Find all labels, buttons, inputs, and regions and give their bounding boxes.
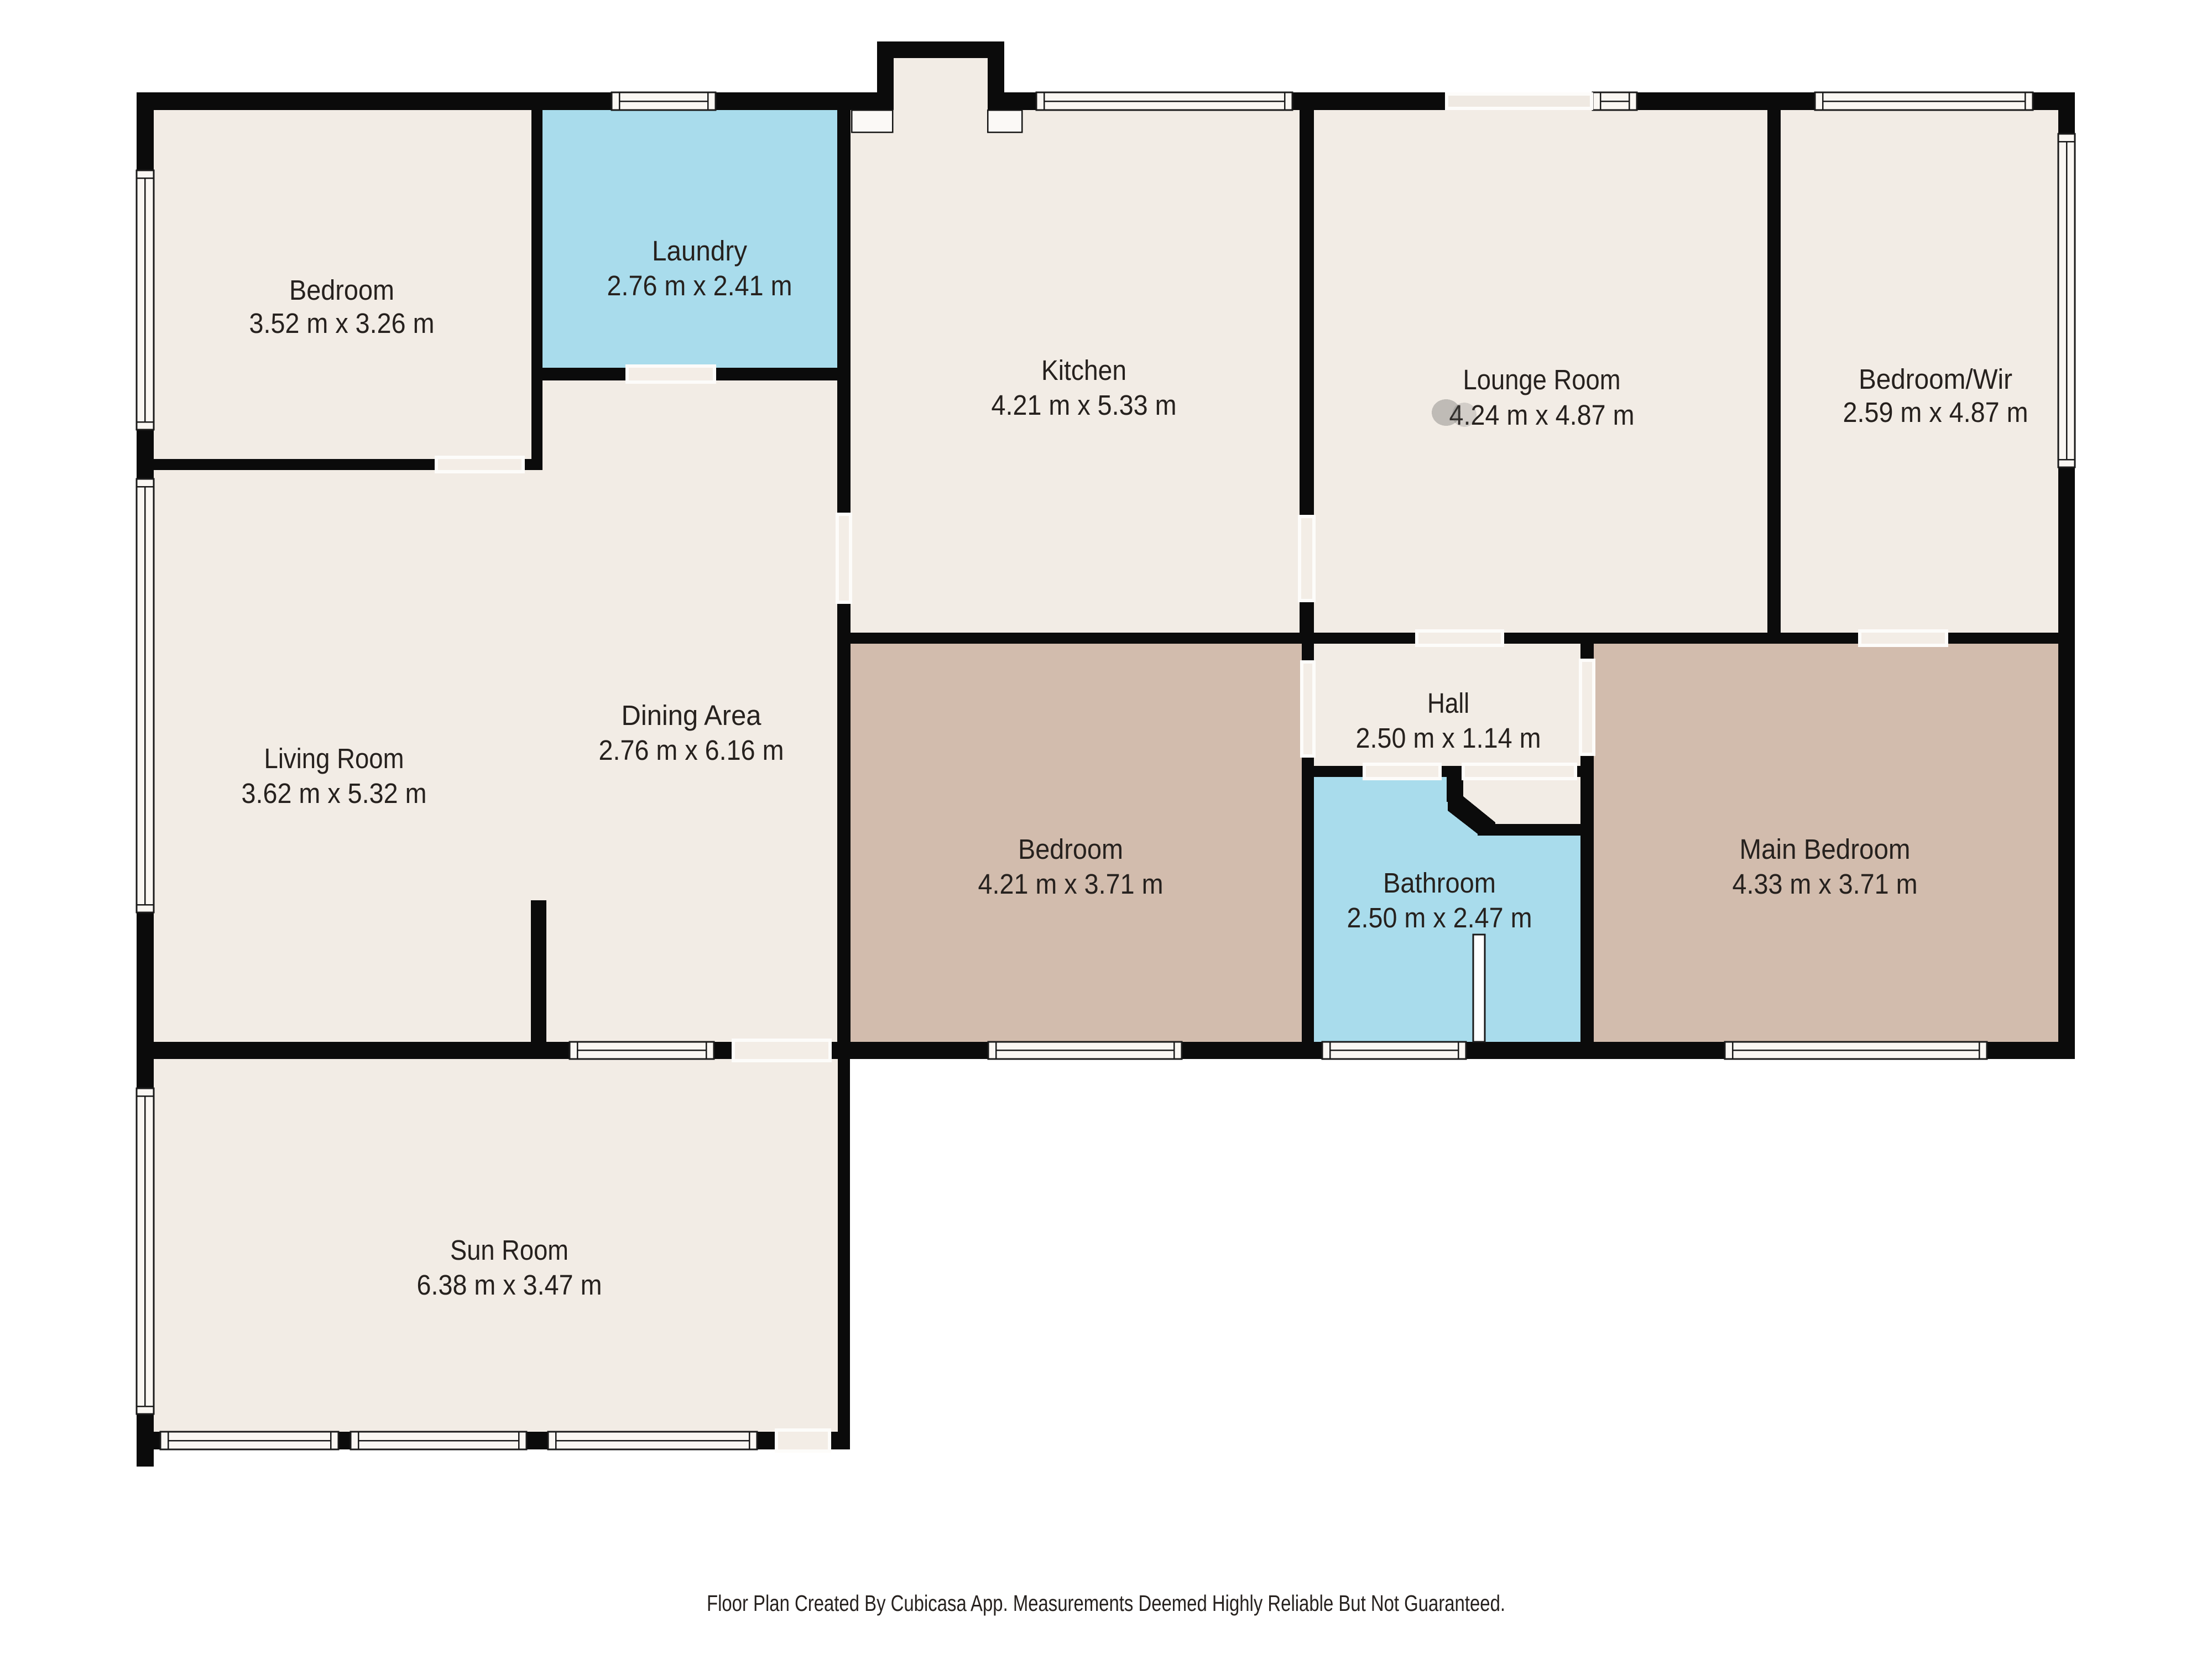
svg-text:2.50 m x 1.14 m: 2.50 m x 1.14 m bbox=[1356, 722, 1541, 754]
svg-text:3.52 m x 3.26 m: 3.52 m x 3.26 m bbox=[249, 307, 435, 339]
svg-text:2.76 m x 6.16 m: 2.76 m x 6.16 m bbox=[599, 734, 784, 766]
svg-text:Bedroom/Wir: Bedroom/Wir bbox=[1859, 363, 2012, 395]
svg-text:3.62 m x 5.32 m: 3.62 m x 5.32 m bbox=[242, 778, 427, 809]
svg-text:Living Room: Living Room bbox=[264, 743, 404, 774]
svg-text:Bathroom: Bathroom bbox=[1383, 867, 1496, 899]
svg-text:Bedroom: Bedroom bbox=[1018, 833, 1123, 865]
svg-text:2.59 m x 4.87 m: 2.59 m x 4.87 m bbox=[1843, 397, 2028, 428]
svg-text:Main Bedroom: Main Bedroom bbox=[1740, 833, 1911, 865]
svg-text:6.38 m x 3.47 m: 6.38 m x 3.47 m bbox=[417, 1269, 602, 1301]
svg-text:4.33 m x 3.71 m: 4.33 m x 3.71 m bbox=[1733, 868, 1918, 900]
svg-text:4.21 m x 5.33 m: 4.21 m x 5.33 m bbox=[992, 389, 1177, 421]
svg-text:Floor Plan Created By Cubicasa: Floor Plan Created By Cubicasa App. Meas… bbox=[707, 1590, 1505, 1616]
svg-text:4.24 m x 4.87 m: 4.24 m x 4.87 m bbox=[1449, 399, 1635, 431]
svg-text:Hall: Hall bbox=[1427, 687, 1469, 719]
svg-text:Lounge Room: Lounge Room bbox=[1463, 364, 1621, 395]
svg-text:4.21 m x 3.71 m: 4.21 m x 3.71 m bbox=[978, 868, 1164, 900]
svg-text:Sun Room: Sun Room bbox=[450, 1234, 568, 1266]
svg-text:Kitchen: Kitchen bbox=[1041, 354, 1126, 386]
svg-text:2.50 m x 2.47 m: 2.50 m x 2.47 m bbox=[1347, 902, 1532, 933]
svg-text:2.76 m x 2.41 m: 2.76 m x 2.41 m bbox=[607, 270, 792, 301]
svg-text:Bedroom: Bedroom bbox=[289, 274, 394, 306]
svg-text:Dining Area: Dining Area bbox=[622, 700, 762, 731]
svg-text:Laundry: Laundry bbox=[652, 235, 747, 267]
